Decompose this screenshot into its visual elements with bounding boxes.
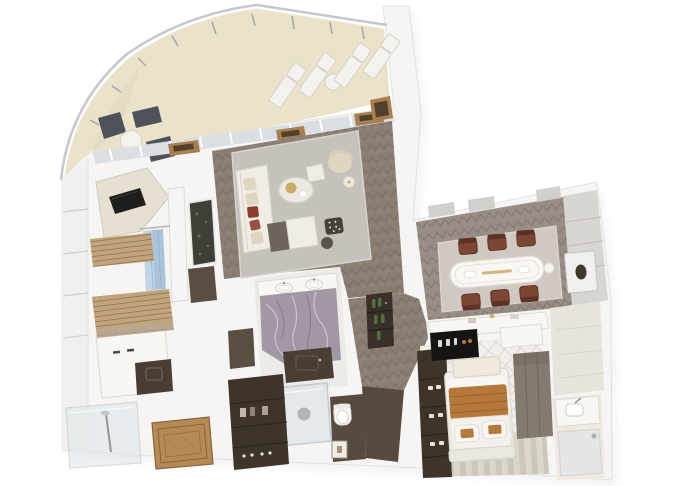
caramel-runner (448, 384, 508, 420)
wc-room (330, 394, 366, 462)
slat-bench-upper (90, 233, 154, 267)
shower-head (592, 434, 597, 439)
wall-art-frame (332, 441, 347, 458)
bedroom-dresser (188, 266, 217, 303)
dining-chair (487, 233, 506, 251)
swivel-armchair (328, 151, 352, 173)
minibar-cabinet (366, 292, 394, 349)
dark-vanity (283, 347, 334, 383)
patterned-pouf (324, 217, 344, 235)
dining-chair (490, 289, 509, 307)
entry-floor (550, 302, 604, 396)
shower-drain (298, 408, 311, 421)
sofa-chaise (286, 216, 318, 249)
closet-vanity-dark-top (135, 359, 173, 395)
coffee-table (279, 178, 313, 203)
moss-art-panel (189, 199, 216, 266)
gold-tray (286, 183, 297, 194)
closet-vanity (96, 329, 173, 398)
bed (442, 356, 515, 462)
armchair-ottoman (306, 164, 325, 182)
bedroom-desk-counter (500, 324, 543, 348)
corridor-dark-floor (362, 386, 404, 462)
shower-enclosure-left (66, 402, 141, 468)
guest-shower (558, 429, 602, 476)
foot-bench (452, 356, 500, 377)
dining-chair (461, 293, 480, 311)
dining-chair (516, 229, 535, 247)
side-table (344, 177, 355, 188)
dining-chair (519, 285, 538, 303)
partition-wall (168, 187, 188, 302)
guest-bedroom (417, 324, 553, 478)
wall-round-decor (544, 263, 554, 273)
closet-wardrobe (228, 374, 289, 470)
toilet (333, 403, 351, 425)
planter (370, 96, 393, 122)
parquet-inlay (152, 417, 213, 469)
rain-shower-head (101, 411, 110, 416)
linen-cabinet (228, 328, 255, 369)
dining-chair (458, 237, 477, 255)
guest-bathroom (552, 394, 605, 480)
wall-niche (564, 251, 597, 293)
side-stool (321, 237, 333, 249)
floorplan-screenshot (0, 0, 680, 486)
slat-bench-lower (92, 289, 174, 338)
bedroom-wardrobe-right (513, 351, 553, 439)
black-minibar-console (430, 329, 479, 361)
suite-floorplan-render (0, 0, 680, 486)
entry (550, 302, 604, 396)
guest-vanity (555, 396, 600, 427)
